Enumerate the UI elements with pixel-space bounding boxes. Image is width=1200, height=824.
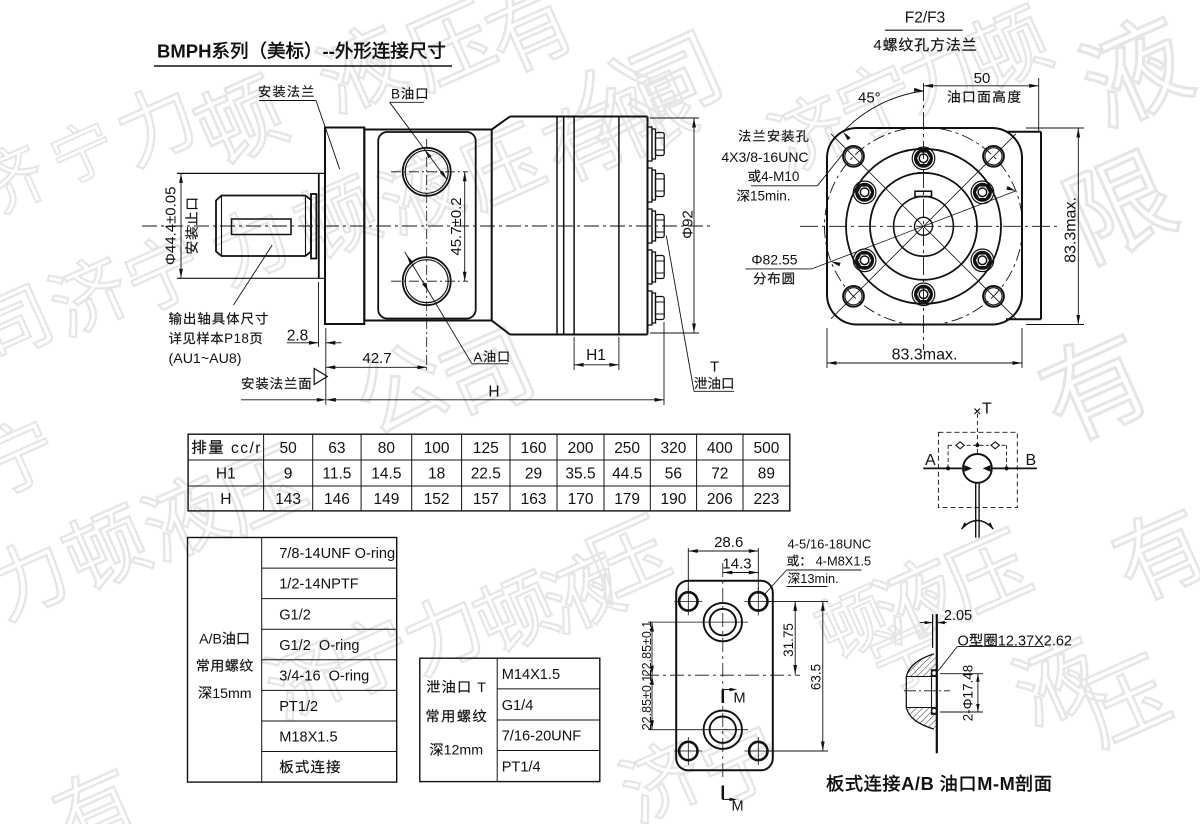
svg-text:11.5: 11.5 xyxy=(322,466,351,483)
svg-text:179: 179 xyxy=(614,491,640,508)
svg-text:4X3/8-16UNC: 4X3/8-16UNC xyxy=(721,149,808,165)
svg-text:146: 146 xyxy=(324,491,350,508)
svg-text:170: 170 xyxy=(568,491,594,508)
svg-text:Φ82.55: Φ82.55 xyxy=(751,252,797,268)
svg-text:45°: 45° xyxy=(858,90,881,107)
svg-text:PT1/4: PT1/4 xyxy=(502,759,541,775)
svg-text:4-M8X1.5: 4-M8X1.5 xyxy=(812,553,871,568)
svg-text:H: H xyxy=(488,384,499,401)
svg-text:83.3max.: 83.3max. xyxy=(1063,197,1080,263)
svg-text:250: 250 xyxy=(614,440,640,457)
svg-text:143: 143 xyxy=(275,491,301,508)
svg-text:44.5: 44.5 xyxy=(612,466,642,483)
svg-text:157: 157 xyxy=(473,491,499,508)
svg-text:7/8-14UNF O-ring: 7/8-14UNF O-ring xyxy=(279,546,395,562)
svg-text:223: 223 xyxy=(754,491,780,508)
svg-text:T: T xyxy=(982,401,992,418)
svg-text:15mm: 15mm xyxy=(212,686,251,702)
svg-text:H1: H1 xyxy=(216,466,236,483)
svg-text:T: T xyxy=(472,680,487,696)
svg-text:M-M: M-M xyxy=(977,774,1015,794)
svg-text:29: 29 xyxy=(525,466,542,483)
svg-text:80: 80 xyxy=(378,440,396,457)
svg-text:P18: P18 xyxy=(224,331,249,346)
svg-text:63.5: 63.5 xyxy=(809,664,824,690)
svg-text:2.8: 2.8 xyxy=(287,328,309,345)
svg-text:83.3max.: 83.3max. xyxy=(892,347,958,364)
svg-text:200: 200 xyxy=(568,440,594,457)
svg-text:1/2-14NPTF: 1/2-14NPTF xyxy=(279,577,359,593)
svg-text:3/4-16 O-ring: 3/4-16 O-ring xyxy=(279,668,369,684)
svg-text:Φ44.4±0.05: Φ44.4±0.05 xyxy=(163,187,180,266)
svg-text:100: 100 xyxy=(424,440,450,457)
svg-text:50: 50 xyxy=(280,440,298,457)
svg-text:22.85±0.1: 22.85±0.1 xyxy=(640,675,654,731)
svg-text:PT1/2: PT1/2 xyxy=(279,699,318,715)
svg-text:12mm: 12mm xyxy=(444,743,483,759)
svg-text:152: 152 xyxy=(424,491,450,508)
svg-text:190: 190 xyxy=(661,491,687,508)
svg-text:M: M xyxy=(732,799,744,815)
svg-text:4: 4 xyxy=(873,37,882,54)
svg-text:50: 50 xyxy=(974,70,991,87)
svg-text:BMPH: BMPH xyxy=(157,40,211,61)
svg-text:M18X1.5: M18X1.5 xyxy=(279,730,337,746)
svg-text:7/16-20UNF: 7/16-20UNF xyxy=(502,729,582,745)
svg-text:163: 163 xyxy=(521,491,547,508)
svg-text:(AU1~AU8): (AU1~AU8) xyxy=(169,351,242,367)
svg-text:F2/F3: F2/F3 xyxy=(905,10,945,27)
svg-text:22.5: 22.5 xyxy=(471,466,501,483)
svg-text:72: 72 xyxy=(711,466,728,483)
svg-text:13min.: 13min. xyxy=(800,571,838,586)
svg-text:63: 63 xyxy=(328,440,345,457)
svg-text:22.85±0.1: 22.85±0.1 xyxy=(640,621,654,677)
svg-text:A: A xyxy=(925,452,936,469)
svg-text:4-5/16-18UNC: 4-5/16-18UNC xyxy=(788,536,872,551)
svg-text:B: B xyxy=(391,86,401,101)
svg-text:Φ92: Φ92 xyxy=(680,210,697,239)
svg-text:500: 500 xyxy=(754,440,780,457)
svg-text:O: O xyxy=(958,634,969,650)
svg-text:89: 89 xyxy=(758,466,775,483)
svg-text:2.05: 2.05 xyxy=(944,608,972,624)
svg-text:A: A xyxy=(474,349,484,364)
svg-text:42.7: 42.7 xyxy=(362,350,391,367)
svg-text:G1/2: G1/2 xyxy=(279,607,311,623)
svg-text:G1/4: G1/4 xyxy=(502,698,534,714)
svg-text:T: T xyxy=(710,359,719,376)
svg-text:9: 9 xyxy=(284,466,293,483)
svg-text:A/B: A/B xyxy=(901,774,940,794)
svg-text:12.37X2.62: 12.37X2.62 xyxy=(998,634,1072,650)
svg-text:56: 56 xyxy=(665,466,682,483)
svg-text:--: -- xyxy=(323,40,335,61)
svg-text:15min.: 15min. xyxy=(750,189,791,204)
svg-text:4-M10: 4-M10 xyxy=(761,169,799,184)
svg-text:14.3: 14.3 xyxy=(722,556,751,573)
svg-text:160: 160 xyxy=(521,440,547,457)
svg-text:H1: H1 xyxy=(586,347,606,364)
svg-text:M: M xyxy=(734,691,746,707)
svg-text:M14X1.5: M14X1.5 xyxy=(502,667,560,683)
svg-text:2-Φ17.48: 2-Φ17.48 xyxy=(960,665,975,722)
svg-text:G1/2 O-ring: G1/2 O-ring xyxy=(279,638,359,654)
svg-text:28.6: 28.6 xyxy=(714,534,743,551)
svg-text:cc/r: cc/r xyxy=(225,440,262,457)
svg-text:45.7±0.2: 45.7±0.2 xyxy=(448,197,465,255)
svg-text:31.75: 31.75 xyxy=(781,623,796,657)
svg-text:H: H xyxy=(220,491,231,508)
svg-text:206: 206 xyxy=(707,491,733,508)
svg-text:18: 18 xyxy=(428,466,445,483)
svg-text:14.5: 14.5 xyxy=(371,466,401,483)
svg-text:125: 125 xyxy=(473,440,499,457)
svg-text:B: B xyxy=(1026,452,1037,469)
svg-text:149: 149 xyxy=(374,491,400,508)
svg-text:35.5: 35.5 xyxy=(565,466,595,483)
svg-text:A/B: A/B xyxy=(199,632,222,648)
svg-text:320: 320 xyxy=(661,440,687,457)
svg-text:400: 400 xyxy=(707,440,733,457)
